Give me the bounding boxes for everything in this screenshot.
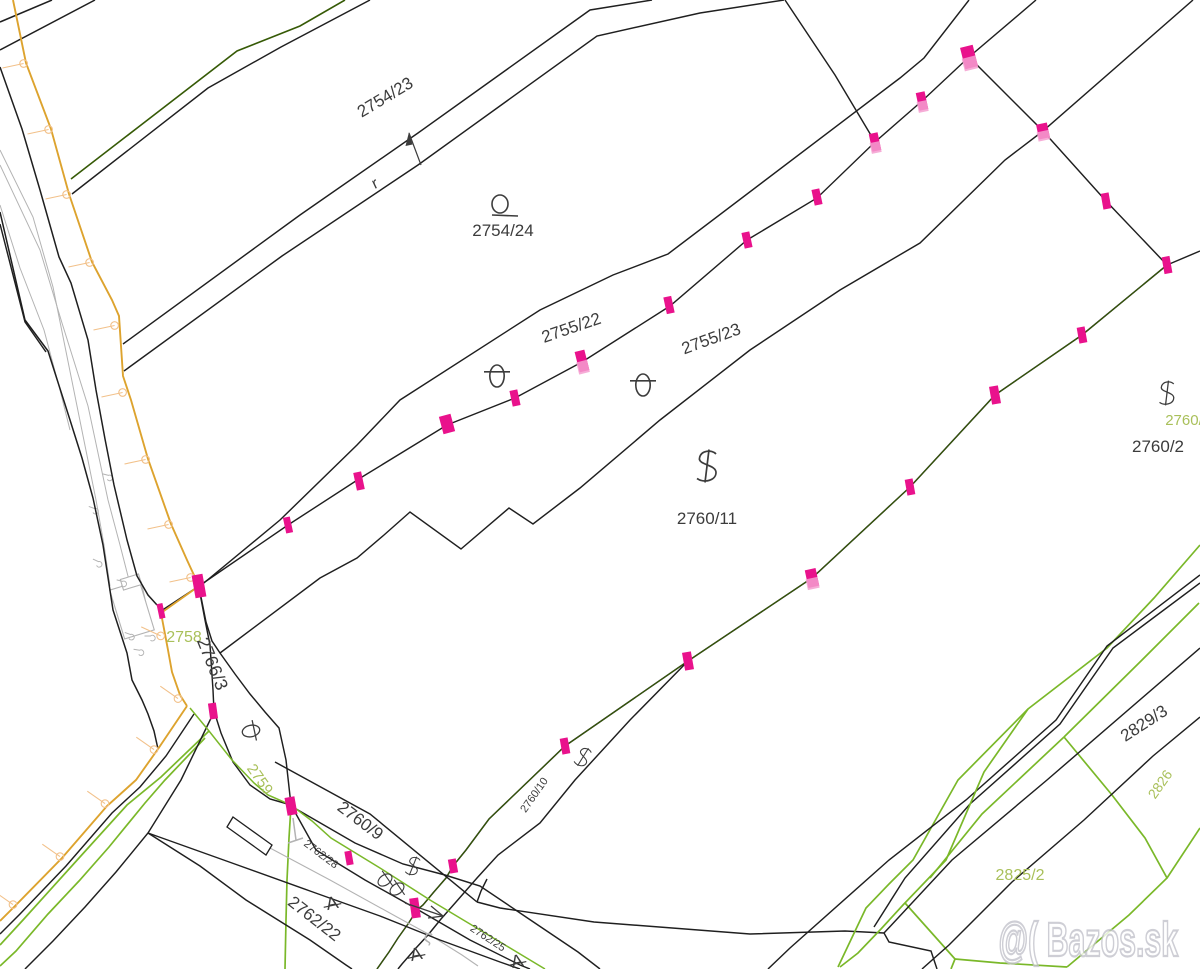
svg-text:2754/24: 2754/24 [472, 221, 533, 240]
svg-text:2760/: 2760/ [1165, 412, 1200, 429]
svg-text:2760/2: 2760/2 [1132, 437, 1184, 456]
svg-text:@( Bazos.sk: @( Bazos.sk [999, 913, 1179, 967]
svg-text:2760/11: 2760/11 [677, 509, 737, 528]
svg-text:2825/2: 2825/2 [996, 867, 1045, 884]
